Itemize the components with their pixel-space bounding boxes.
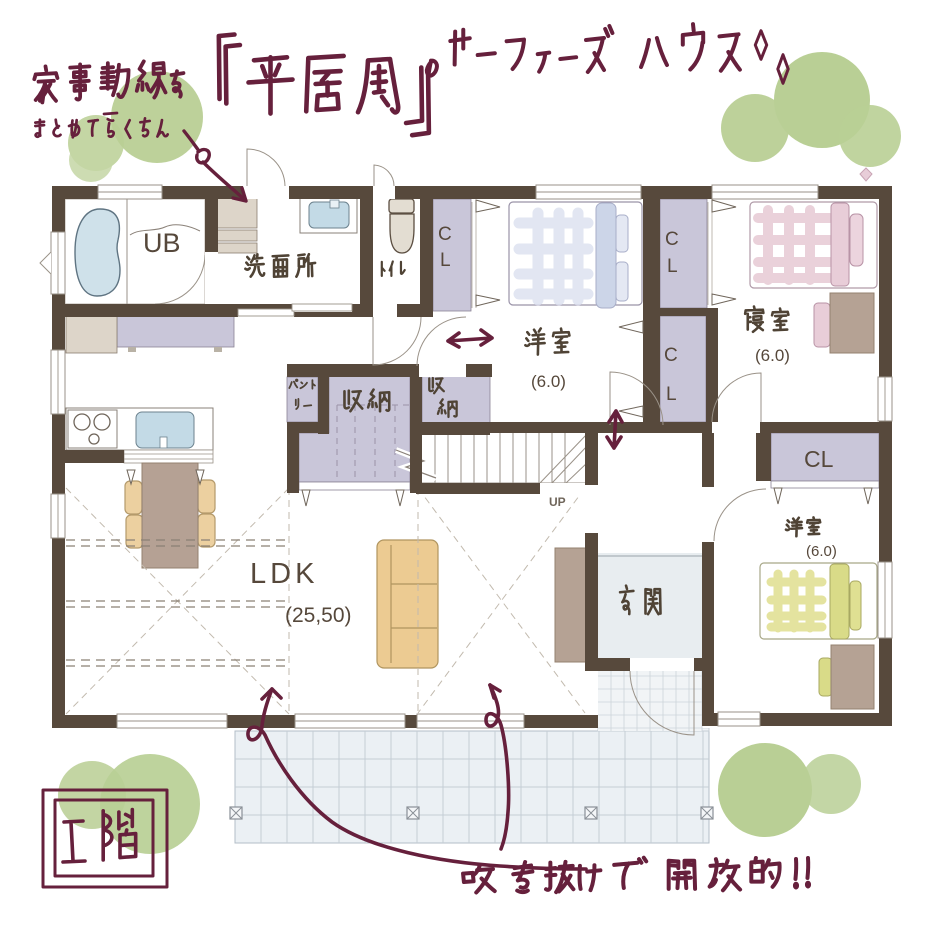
svg-text:(6.0): (6.0) — [755, 346, 790, 365]
svg-text:C: C — [438, 224, 452, 245]
svg-text:L: L — [440, 250, 451, 271]
svg-text:L: L — [667, 256, 678, 277]
svg-text:L: L — [666, 384, 677, 405]
svg-text:C: C — [665, 229, 679, 250]
svg-text:C: C — [664, 345, 678, 366]
svg-text:(6.0): (6.0) — [531, 372, 566, 391]
svg-text:LDK: LDK — [250, 558, 318, 590]
svg-text:UP: UP — [549, 495, 566, 509]
svg-text:UB: UB — [143, 228, 181, 258]
svg-text:(6.0): (6.0) — [806, 543, 837, 560]
svg-text:CL: CL — [804, 446, 834, 472]
svg-text:(25,50): (25,50) — [285, 604, 352, 627]
